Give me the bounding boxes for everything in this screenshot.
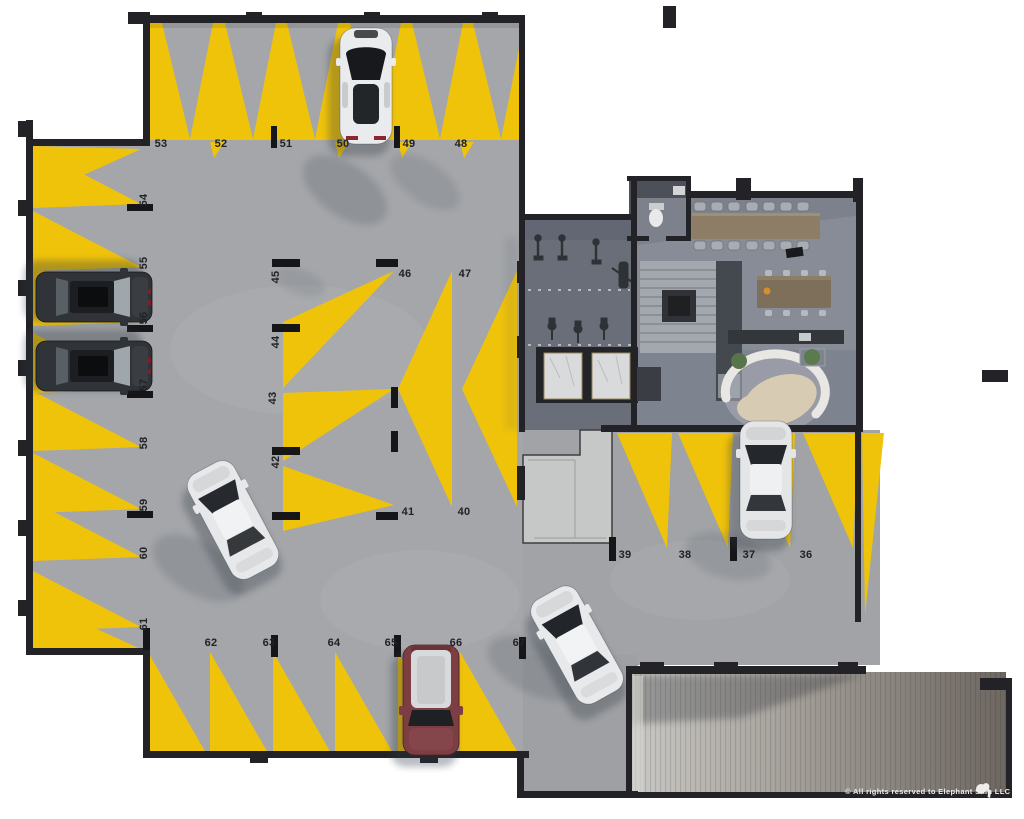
wall-amenity-east <box>856 191 863 432</box>
space-label-53: 53 <box>155 138 168 150</box>
space-label-42: 42 <box>270 456 282 469</box>
conference-table <box>692 213 820 239</box>
vehicle-ramp <box>632 672 1006 792</box>
space-label-37: 37 <box>743 549 756 561</box>
space-label-57: 57 <box>138 379 150 392</box>
space-label-39: 39 <box>619 549 632 561</box>
space-label-56: 56 <box>138 312 150 325</box>
kitchen-counter <box>728 330 844 344</box>
space-label-52: 52 <box>215 138 228 150</box>
wall-top <box>128 15 525 23</box>
space-label-44: 44 <box>270 335 282 348</box>
space-label-46: 46 <box>399 268 412 280</box>
space-label-49: 49 <box>403 138 416 150</box>
space-label-36: 36 <box>800 549 813 561</box>
plant-icon <box>731 353 747 369</box>
car-suv-dark-space-56 <box>24 260 152 326</box>
plant-icon <box>804 349 820 365</box>
space-label-63: 63 <box>263 637 276 649</box>
column <box>736 178 751 200</box>
space-label-51: 51 <box>280 138 293 150</box>
toilet-icon <box>649 209 663 227</box>
wall-bottom-band-left <box>143 648 150 758</box>
space-label-60: 60 <box>138 547 150 560</box>
space-label-47: 47 <box>459 268 472 280</box>
elevator-bank <box>536 347 638 403</box>
parking-floor-plan: 53 52 51 50 49 48 54 55 56 57 58 59 60 6… <box>0 0 1024 819</box>
space-label-65: 65 <box>385 637 398 649</box>
car-crossover-maroon-space-66 <box>391 645 463 767</box>
toilet-tank-icon <box>649 203 664 210</box>
elevator-cab <box>544 353 582 399</box>
space-label-48: 48 <box>455 138 468 150</box>
space-label-58: 58 <box>138 437 150 450</box>
space-label-64: 64 <box>328 637 341 649</box>
throw-rug <box>737 394 777 422</box>
sink-icon <box>799 333 811 341</box>
space-label-45: 45 <box>270 271 282 284</box>
space-label-54: 54 <box>138 193 150 206</box>
space-label-66: 66 <box>450 637 463 649</box>
sink-icon <box>673 186 685 195</box>
floor-sheen <box>320 550 520 650</box>
wall-notch-horizontal <box>26 139 150 146</box>
space-label-43: 43 <box>267 392 279 405</box>
space-label-59: 59 <box>138 499 150 512</box>
wall-gym-east <box>631 176 637 430</box>
space-label-62: 62 <box>205 637 218 649</box>
space-label-40: 40 <box>458 506 471 518</box>
space-label-55: 55 <box>138 257 150 270</box>
fruit-bowl-icon <box>764 288 771 295</box>
car-sports-white-space-50 <box>328 28 396 156</box>
wall-right-stalls <box>855 432 861 622</box>
floor-plan-svg: 53 52 51 50 49 48 54 55 56 57 58 59 60 6… <box>0 0 1024 819</box>
car-sedan-white-space-37 <box>728 421 796 551</box>
space-label-67: 67 <box>513 637 526 649</box>
wall-notch-vertical <box>143 15 150 146</box>
space-label-50: 50 <box>337 138 350 150</box>
wall-amenity-south <box>601 425 863 432</box>
wall-bottom <box>143 751 529 758</box>
space-label-38: 38 <box>679 549 692 561</box>
space-label-41: 41 <box>402 506 415 518</box>
car-suv-dark-space-57 <box>24 329 152 395</box>
elevator-cab <box>592 353 630 399</box>
wall-amenity-north <box>686 191 862 198</box>
space-label-61: 61 <box>138 618 150 631</box>
storage-block <box>637 367 661 401</box>
wall-east-hall <box>519 18 525 432</box>
